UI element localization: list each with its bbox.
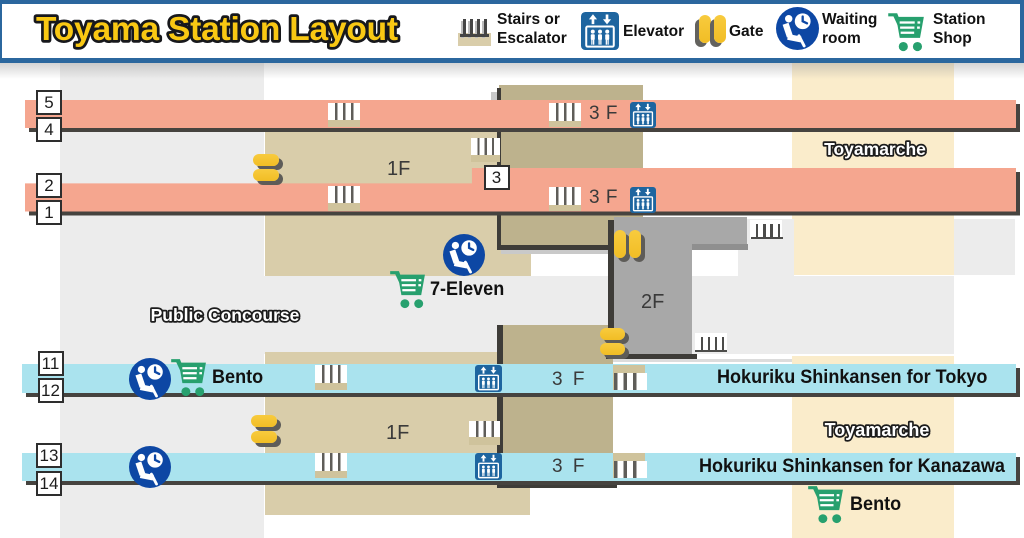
svg-text:Public Concourse: Public Concourse [151, 305, 300, 325]
svg-text:Toyama Station Layout: Toyama Station Layout [36, 11, 398, 48]
svg-text:Toyamarche: Toyamarche [824, 139, 926, 159]
svg-text:Toyamarche: Toyamarche [825, 420, 930, 440]
